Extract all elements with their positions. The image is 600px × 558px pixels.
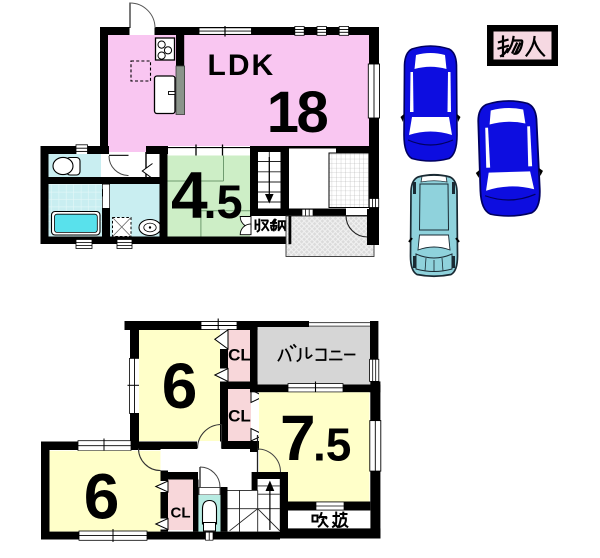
svg-text:CL: CL (171, 505, 191, 522)
svg-text:CL: CL (228, 407, 251, 426)
svg-text:7: 7 (280, 402, 316, 474)
svg-text:LDK: LDK (208, 49, 276, 82)
svg-text:CL: CL (228, 346, 251, 365)
svg-text:4: 4 (171, 158, 208, 232)
svg-text:6: 6 (162, 350, 198, 422)
svg-text:18: 18 (267, 80, 328, 145)
svg-text:.5: .5 (313, 419, 351, 471)
svg-text:.5: .5 (204, 175, 243, 228)
svg-text:6: 6 (84, 461, 120, 533)
